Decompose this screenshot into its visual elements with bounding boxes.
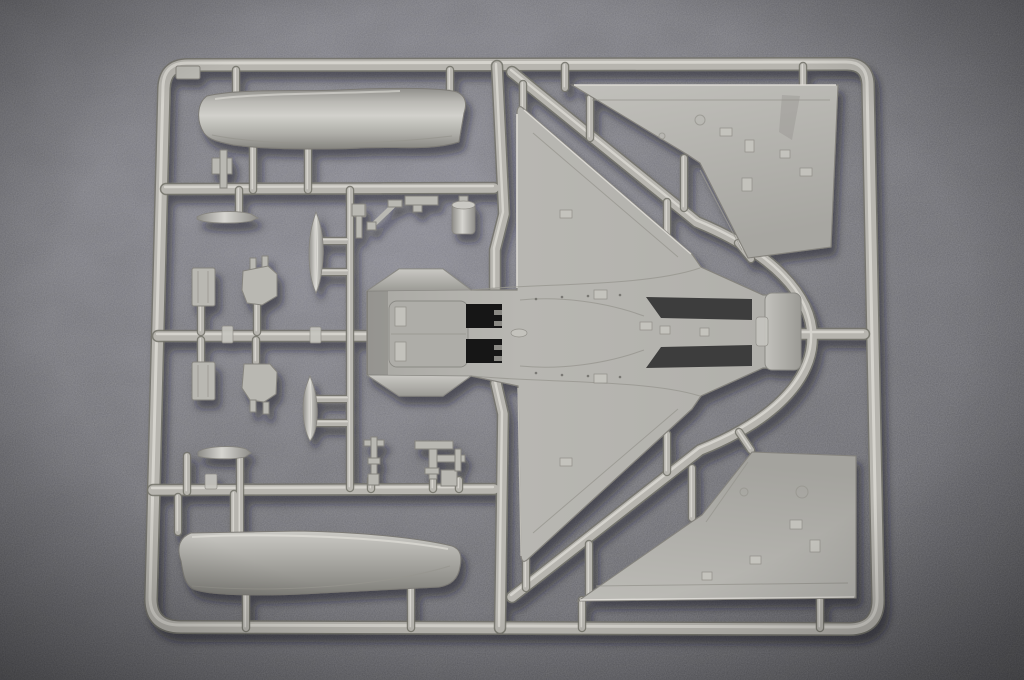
photo-canvas xyxy=(0,0,1024,680)
photo-vignette xyxy=(0,0,1024,680)
sprue-photograph: Photograph of a light-gray injection-mol… xyxy=(0,0,1024,680)
